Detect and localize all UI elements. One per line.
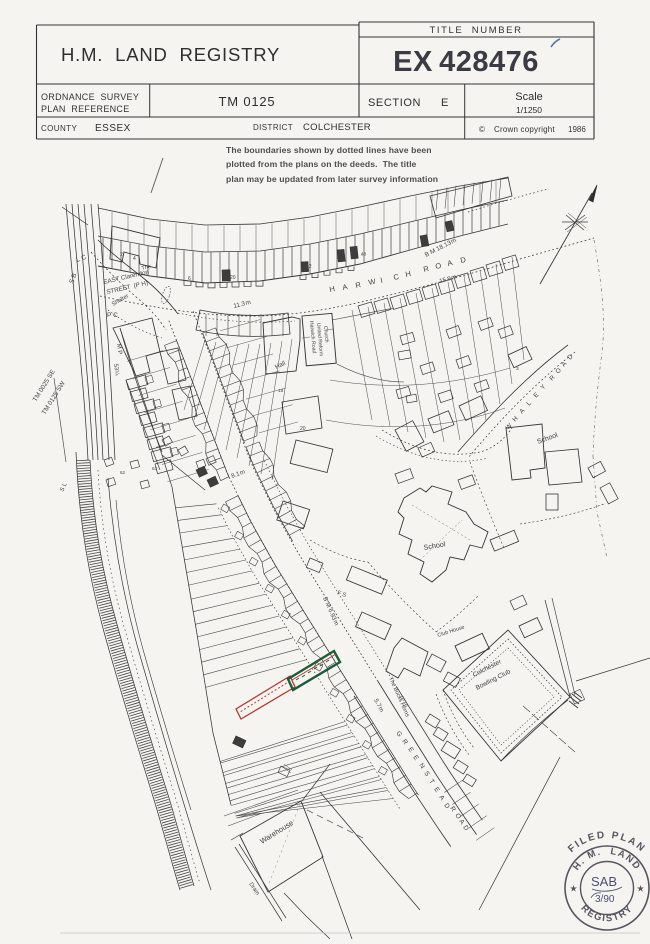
svg-text:6: 6: [188, 276, 191, 282]
svg-text:Scale: Scale: [515, 91, 543, 103]
svg-text:SECTION: SECTION: [368, 97, 421, 109]
svg-text:18: 18: [278, 388, 284, 394]
svg-text:4: 4: [133, 256, 136, 262]
svg-text:COUNTY: COUNTY: [41, 124, 77, 133]
svg-text:E: E: [441, 97, 448, 109]
svg-text:SAB: SAB: [591, 874, 617, 889]
svg-text:32: 32: [306, 264, 312, 270]
svg-text:63: 63: [152, 466, 158, 471]
svg-text:TITLE NUMBER: TITLE NUMBER: [429, 25, 522, 36]
svg-text:46: 46: [360, 251, 367, 258]
svg-text:★: ★: [636, 884, 644, 894]
svg-text:ESSEX: ESSEX: [95, 123, 131, 134]
svg-text:★: ★: [569, 884, 577, 894]
svg-text:3/90: 3/90: [595, 894, 615, 905]
svg-text:H.M. LAND REGISTRY: H.M. LAND REGISTRY: [61, 44, 280, 65]
svg-text:62: 62: [120, 470, 126, 475]
svg-text:EX 428476: EX 428476: [393, 46, 539, 78]
svg-text:ORDNANCE SURVEY: ORDNANCE SURVEY: [41, 92, 139, 102]
svg-text:plan may be updated from later: plan may be updated from later survey in…: [226, 174, 438, 184]
svg-text:1986: 1986: [568, 125, 586, 134]
svg-text:©: ©: [479, 125, 485, 134]
svg-text:TM 0125: TM 0125: [219, 94, 276, 109]
svg-text:2: 2: [120, 252, 123, 258]
svg-text:DISTRICT: DISTRICT: [253, 123, 293, 132]
svg-text:PLAN REFERENCE: PLAN REFERENCE: [41, 104, 130, 114]
svg-text:plotted from the plans on the: plotted from the plans on the deeds. The…: [226, 159, 417, 169]
svg-text:3: 3: [516, 366, 519, 372]
svg-text:Crown copyright: Crown copyright: [494, 125, 555, 134]
svg-text:The boundaries shown by dotted: The boundaries shown by dotted lines hav…: [226, 145, 432, 155]
svg-text:1/1250: 1/1250: [516, 105, 542, 115]
svg-text:P C: P C: [107, 312, 118, 319]
svg-text:20: 20: [300, 426, 306, 432]
svg-text:7: 7: [470, 416, 473, 422]
svg-text:COLCHESTER: COLCHESTER: [303, 122, 371, 133]
svg-text:42: 42: [339, 257, 346, 264]
svg-text:20: 20: [230, 275, 236, 281]
